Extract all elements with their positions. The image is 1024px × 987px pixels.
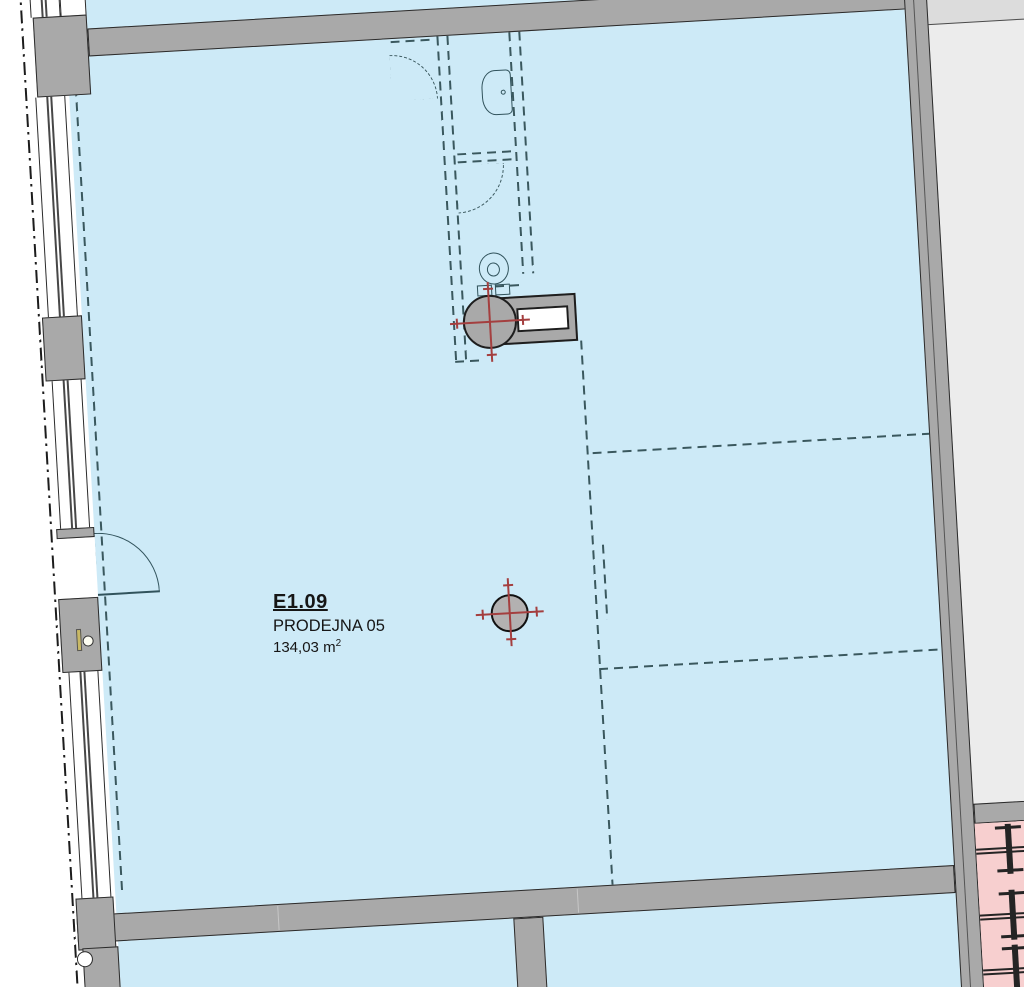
wall-joint-line bbox=[277, 906, 279, 930]
floorplan-canvas: E1.09 PRODEJNA 05 134,03 m2 bbox=[0, 0, 1024, 987]
wall-strip-north-west bbox=[56, 0, 87, 16]
steel-beam-symbol bbox=[975, 820, 1024, 877]
wall-pier-corner-nw bbox=[33, 15, 92, 98]
steel-beam-symbol bbox=[978, 886, 1024, 943]
window-glazing-line bbox=[37, 0, 43, 17]
sink-fixture bbox=[480, 69, 513, 116]
room-name: PRODEJNA 05 bbox=[273, 617, 385, 636]
room-label: E1.09 PRODEJNA 05 134,03 m2 bbox=[273, 591, 385, 656]
wall-joint-line bbox=[577, 889, 579, 913]
room-main-sales-area bbox=[67, 9, 954, 913]
wall-corner-block-sw bbox=[75, 896, 116, 950]
room-area: 134,03 m2 bbox=[273, 638, 385, 656]
door-knob bbox=[82, 635, 94, 647]
door-jamb-bar bbox=[56, 527, 95, 539]
wall-pier-west bbox=[42, 315, 86, 381]
window-segment bbox=[52, 379, 90, 528]
zone-storage-pink bbox=[975, 807, 1024, 987]
floorplan-rotated-layer bbox=[0, 0, 1024, 987]
window-segment bbox=[26, 0, 61, 18]
wall-pier-west-entrance bbox=[58, 597, 102, 673]
steel-beam-symbol bbox=[982, 941, 1024, 987]
door-handle-plate bbox=[76, 629, 82, 651]
room-number: E1.09 bbox=[273, 591, 385, 614]
toilet-tank-right bbox=[495, 284, 511, 296]
